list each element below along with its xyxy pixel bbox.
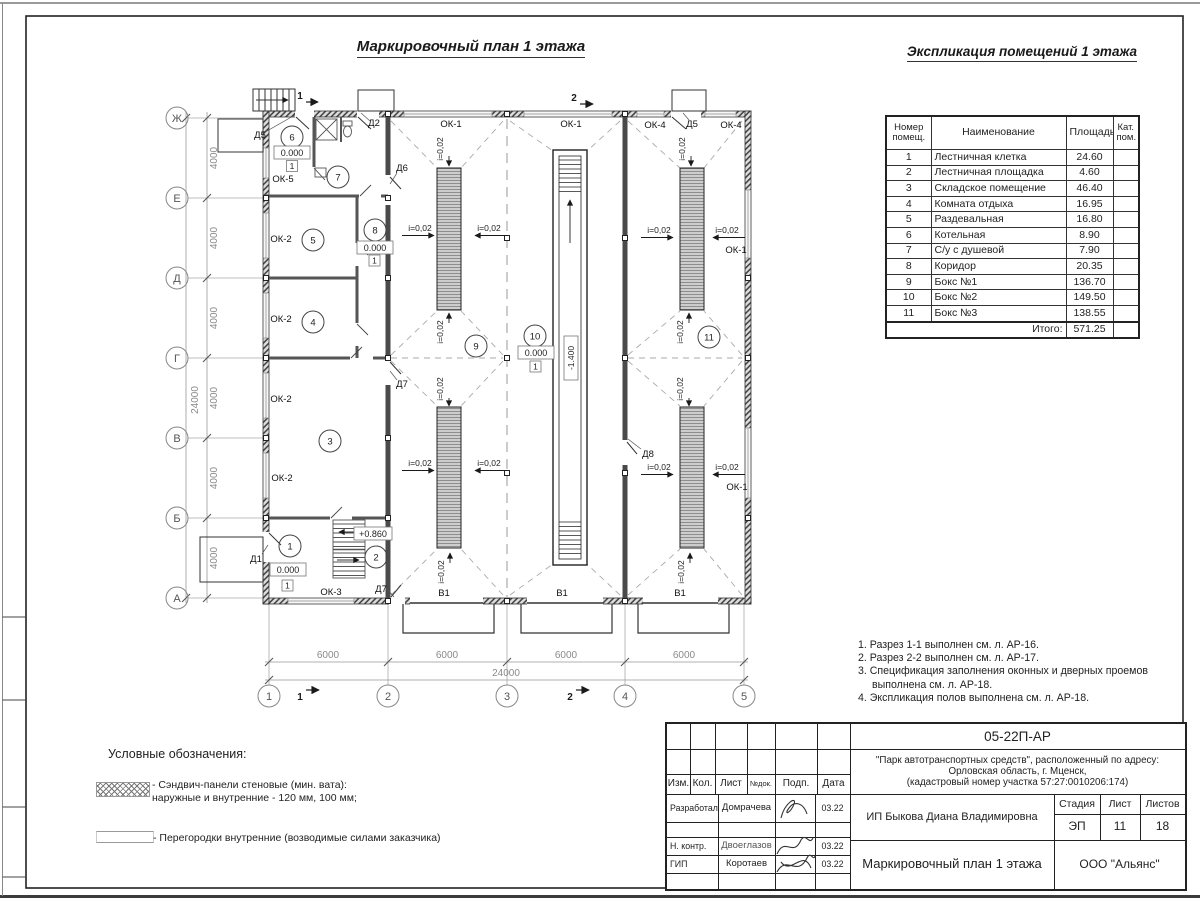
tb-company: ООО "Альянс" (1054, 840, 1185, 889)
slope-label: i=0,02 (477, 223, 501, 233)
total-label: Итого: (886, 322, 1066, 339)
table-row: 11Бокс №3138.55 (886, 305, 1139, 321)
tb-doc-number: 05-22П-АР (850, 724, 1185, 749)
table-row: 3Складское помещение46.40 (886, 181, 1139, 197)
col-axis-label: 3 (504, 691, 510, 703)
table-row: 8Коридор20.35 (886, 259, 1139, 275)
signature (775, 794, 815, 824)
note-item: 1. Разрез 1-1 выполнен см. л. АР-16. (858, 639, 1190, 652)
dim-24000: 24000 (492, 668, 520, 679)
window-label: ОК-1 (726, 482, 747, 493)
tb-col-list: Лист (715, 774, 747, 794)
window-label: ОК-3 (320, 587, 341, 598)
cell-area: 138.55 (1066, 305, 1113, 321)
col-axis-label: 5 (741, 691, 747, 703)
cell-name: С/у с душевой (931, 243, 1066, 259)
window-label: ОК-2 (271, 473, 292, 484)
toilet-icon (344, 126, 352, 137)
tb-col-kol: Кол. (690, 774, 715, 794)
dim-6000: 6000 (673, 650, 696, 661)
window-label: ОК-2 (270, 234, 291, 245)
slope-label: i=0,02 (715, 225, 739, 235)
floor-type: 1 (285, 581, 290, 591)
slope-label: i=0,02 (436, 560, 446, 584)
tb-col-podp: Подп. (775, 774, 817, 794)
row-axis-label: Е (173, 193, 180, 205)
slope-label: i=0,02 (675, 377, 685, 401)
window-ok1-top-b (524, 111, 612, 116)
dim-4000: 4000 (209, 466, 220, 489)
porch-d2 (358, 90, 394, 111)
col-header-num: Номер помещ. (886, 116, 931, 150)
window-label: ОК-2 (270, 394, 291, 405)
plan-title: Маркировочный план 1 этажа (346, 38, 596, 55)
cell-cat (1113, 290, 1139, 306)
tb-name: Домрачева (718, 794, 775, 822)
cell-num: 10 (886, 290, 931, 306)
window-label: ОК-5 (272, 174, 293, 185)
dim-4000: 4000 (209, 306, 220, 329)
cell-name: Бокс №1 (931, 274, 1066, 290)
tb-sheets-label: Листов (1140, 794, 1185, 814)
cell-name: Бокс №2 (931, 290, 1066, 306)
table-header-row: Номер помещ. Наименование Площадь Кат. п… (886, 116, 1139, 150)
legend-item-sandwich: - Сэндвич-панели стеновые (мин. вата): н… (152, 779, 452, 804)
window-label: ОК-1 (725, 245, 746, 256)
cell-area: 20.35 (1066, 259, 1113, 275)
cell-area: 46.40 (1066, 181, 1113, 197)
row-axis-label: Г (174, 353, 180, 365)
level-mark: 0.000 (525, 348, 548, 358)
pit-level-label: -1.400 (566, 346, 576, 370)
cell-name: Лестничная площадка (931, 165, 1066, 181)
interior-walls (386, 117, 638, 598)
row-axis-label: Д (173, 273, 181, 285)
table-row: 5Раздевальная16.80 (886, 212, 1139, 228)
level-mark: 0.000 (364, 243, 387, 253)
tb-role: Н. контр. (667, 837, 721, 855)
cell-name: Комната отдыха (931, 196, 1066, 212)
cell-name: Бокс №3 (931, 305, 1066, 321)
notes-block: 1. Разрез 1-1 выполнен см. л. АР-16. 2. … (858, 639, 1190, 705)
tb-project-line1: "Парк автотранспортных средств", располо… (876, 755, 1159, 766)
floor-type: 1 (372, 256, 377, 266)
slope-label: i=0,02 (435, 137, 445, 161)
slope-label: i=0,02 (647, 225, 671, 235)
cell-num: 8 (886, 259, 931, 275)
cell-area: 149.50 (1066, 290, 1113, 306)
tb-role: Разработал (667, 794, 721, 822)
tb-date: 03.22 (815, 794, 850, 822)
tb-col-data: Дата (817, 774, 850, 794)
section-mark: 2 (571, 93, 577, 104)
table-row: 6Котельная8.90 (886, 227, 1139, 243)
window-label: ОК-1 (560, 119, 581, 130)
gate-apron (403, 604, 494, 633)
slope-label: i=0,02 (677, 137, 687, 161)
tb-project: "Парк автотранспортных средств", располо… (850, 749, 1185, 794)
cell-num: 1 (886, 150, 931, 166)
row-axis-label: А (173, 593, 181, 605)
slope-label: i=0,02 (676, 560, 686, 584)
table-row: 2Лестничная площадка4.60 (886, 165, 1139, 181)
signature (773, 832, 817, 884)
tb-stage-value: ЭП (1054, 814, 1100, 840)
col-header-area: Площадь (1066, 116, 1113, 150)
cell-area: 7.90 (1066, 243, 1113, 259)
window-ok1-top-a (404, 111, 492, 116)
room-number: 11 (704, 333, 714, 344)
slope-label: i=0,02 (435, 377, 445, 401)
cell-num: 4 (886, 196, 931, 212)
cell-cat (1113, 196, 1139, 212)
tb-sheet-value: 11 (1100, 814, 1140, 840)
table-row: 1Лестничная клетка24.60 (886, 150, 1139, 166)
cell-area: 16.95 (1066, 196, 1113, 212)
window-ok5 (263, 148, 268, 178)
wc-fixtures (315, 117, 352, 177)
dim-4000: 4000 (209, 386, 220, 409)
drawing-sheet: 4000 4000 4000 4000 4000 4000 24000 6000… (0, 0, 1200, 900)
legend-title: Условные обозначения: (108, 747, 247, 761)
toilet-icon (343, 121, 352, 126)
col-axis-label: 2 (385, 691, 391, 703)
window-ok2-2 (263, 293, 268, 338)
section-mark: 1 (297, 692, 303, 703)
legend-swatch-sandwich (96, 782, 150, 797)
cell-area: 136.70 (1066, 274, 1113, 290)
tb-col-izm: Изм. (667, 774, 690, 794)
floor-type: 1 (290, 161, 295, 171)
room-number: 4 (310, 318, 315, 329)
cell-cat (1113, 259, 1139, 275)
tb-date: 03.22 (815, 837, 850, 855)
gate-apron (521, 604, 612, 633)
tb-date: 03.22 (815, 855, 850, 873)
cell-cat (1113, 181, 1139, 197)
cell-cat (1113, 243, 1139, 259)
legend-item-partition: - Перегородки внутренние (возводимые сил… (153, 832, 483, 845)
gates (403, 597, 729, 633)
tb-project-line3: (кадастровый номер участка 57:27:0010206… (907, 777, 1129, 788)
cell-name: Лестничная клетка (931, 150, 1066, 166)
note-item: 4. Экспликация полов выполнена см. л. АР… (858, 692, 1190, 705)
room-number: 8 (372, 226, 377, 237)
room-number: 6 (289, 133, 294, 144)
table-row: 4Комната отдыха16.95 (886, 196, 1139, 212)
cell-name: Раздевальная (931, 212, 1066, 228)
window-label: ОК-4 (644, 120, 665, 131)
window-label: ОК-4 (720, 120, 741, 131)
window-ok4-b (705, 111, 736, 116)
section-mark: 1 (297, 91, 303, 102)
total-value: 571.25 (1066, 322, 1113, 339)
section-mark: 2 (567, 692, 573, 703)
slope-label: i=0,02 (408, 223, 432, 233)
porch-d5b (672, 90, 706, 111)
row-axis-label: Ж (172, 113, 182, 125)
level-mark: +0.860 (359, 529, 387, 539)
cell-cat (1113, 274, 1139, 290)
tb-role: ГИП (667, 855, 721, 873)
cell-num: 9 (886, 274, 931, 290)
cell-num: 11 (886, 305, 931, 321)
room-number: 9 (473, 342, 478, 353)
row-axis-label: В (173, 433, 180, 445)
window-label: ОК-1 (440, 119, 461, 130)
table-row: 10Бокс №2149.50 (886, 290, 1139, 306)
row-axis-label: Б (173, 513, 180, 525)
col-axis-label: 1 (266, 691, 272, 703)
dim-4000: 4000 (209, 226, 220, 249)
level-mark: 0.000 (277, 565, 300, 575)
slope-label: i=0,02 (408, 458, 432, 468)
table-row: 7С/у с душевой7.90 (886, 243, 1139, 259)
cell-name: Котельная (931, 227, 1066, 243)
slope-label: i=0,02 (647, 462, 671, 472)
dim-24000: 24000 (190, 386, 201, 414)
tb-name: Коротаев (718, 855, 775, 873)
tb-stage-label: Стадия (1054, 794, 1100, 814)
cell-cat (1113, 305, 1139, 321)
door-label: Д6 (396, 163, 408, 174)
cell-name: Коридор (931, 259, 1066, 275)
dim-4000: 4000 (209, 546, 220, 569)
room-number: 10 (530, 332, 541, 343)
cell-num: 5 (886, 212, 931, 228)
cell-num: 3 (886, 181, 931, 197)
door-label: Д5 (254, 130, 266, 141)
cell-area: 4.60 (1066, 165, 1113, 181)
cell-cat (1113, 150, 1139, 166)
note-item: 3. Спецификация заполнения оконных и две… (858, 665, 1190, 691)
door-label: Д5 (686, 119, 698, 130)
col-header-name: Наименование (931, 116, 1066, 150)
room-number: 1 (287, 542, 292, 553)
tb-sheets-value: 18 (1140, 814, 1185, 840)
tb-project-line2: Орловская область, г. Мценск, (949, 766, 1087, 777)
table-row: 9Бокс №1136.70 (886, 274, 1139, 290)
room-number: 2 (373, 553, 378, 564)
tb-col-doc: №док. (747, 774, 775, 794)
floor-type: 1 (533, 362, 538, 372)
room-table: Номер помещ. Наименование Площадь Кат. п… (885, 115, 1140, 339)
window-ok3 (288, 598, 354, 603)
tb-sheet-label: Лист (1100, 794, 1140, 814)
cell-area: 16.80 (1066, 212, 1113, 228)
cell-num: 6 (886, 227, 931, 243)
gate-label: В1 (556, 588, 568, 599)
door-d7b-opening (389, 597, 405, 605)
level-marks: 0.000 0.000 0.000 0.000 +0.860 (270, 146, 554, 576)
dim-6000: 6000 (555, 650, 578, 661)
room-number: 5 (310, 236, 315, 247)
cell-area: 8.90 (1066, 227, 1113, 243)
slope-label: i=0,02 (715, 462, 739, 472)
cell-num: 7 (886, 243, 931, 259)
table-title: Экспликация помещений 1 этажа (897, 44, 1147, 59)
window-ok4-a (637, 111, 664, 116)
col-axis-label: 4 (622, 691, 628, 703)
col-header-cat: Кат. пом. (1113, 116, 1139, 150)
door-label: Д7 (396, 379, 408, 390)
door-label: Д1 (250, 554, 262, 565)
cell-num: 2 (886, 165, 931, 181)
dim-6000: 6000 (317, 650, 340, 661)
door-d5a-opening (295, 110, 314, 118)
slope-label: i=0,02 (675, 320, 685, 344)
tb-client: ИП Быкова Диана Владимировна (850, 794, 1054, 840)
note-item: 2. Разрез 2-2 выполнен см. л. АР-17. (858, 652, 1190, 665)
cell-area: 24.60 (1066, 150, 1113, 166)
cell-name: Складское помещение (931, 181, 1066, 197)
level-mark: 0.000 (281, 148, 304, 158)
tb-name: Двоеглазов (718, 837, 775, 855)
slope-label: i=0,02 (477, 458, 501, 468)
window-ok2-3 (263, 373, 268, 418)
dim-6000: 6000 (436, 650, 459, 661)
cell-cat (1113, 227, 1139, 243)
gate-label: В1 (438, 588, 450, 599)
partition-door-leaves (314, 168, 371, 518)
door-label: Д7 (375, 584, 387, 595)
door-label: Д2 (368, 118, 380, 129)
room-number: 3 (327, 437, 332, 448)
title-block: Изм. Кол. Лист №док. Подп. Дата Разработ… (665, 722, 1187, 891)
door-label: Д8 (642, 449, 654, 460)
window-ok2-4 (263, 453, 268, 498)
tb-sheet-title: Маркировочный план 1 этажа (850, 840, 1054, 889)
room-circles: 1 2 3 4 5 6 7 8 9 10 11 (279, 126, 720, 568)
window-ok2-1 (263, 213, 268, 258)
window-label: ОК-2 (270, 314, 291, 325)
gate-label: В1 (674, 588, 686, 599)
legend-swatch-partition (96, 831, 154, 843)
gate-apron (638, 604, 729, 633)
cell-cat (1113, 212, 1139, 228)
slope-label: i=0,02 (435, 320, 445, 344)
cell-cat (1113, 165, 1139, 181)
table-total-row: Итого:571.25 (886, 322, 1139, 339)
room-number: 7 (335, 173, 340, 184)
